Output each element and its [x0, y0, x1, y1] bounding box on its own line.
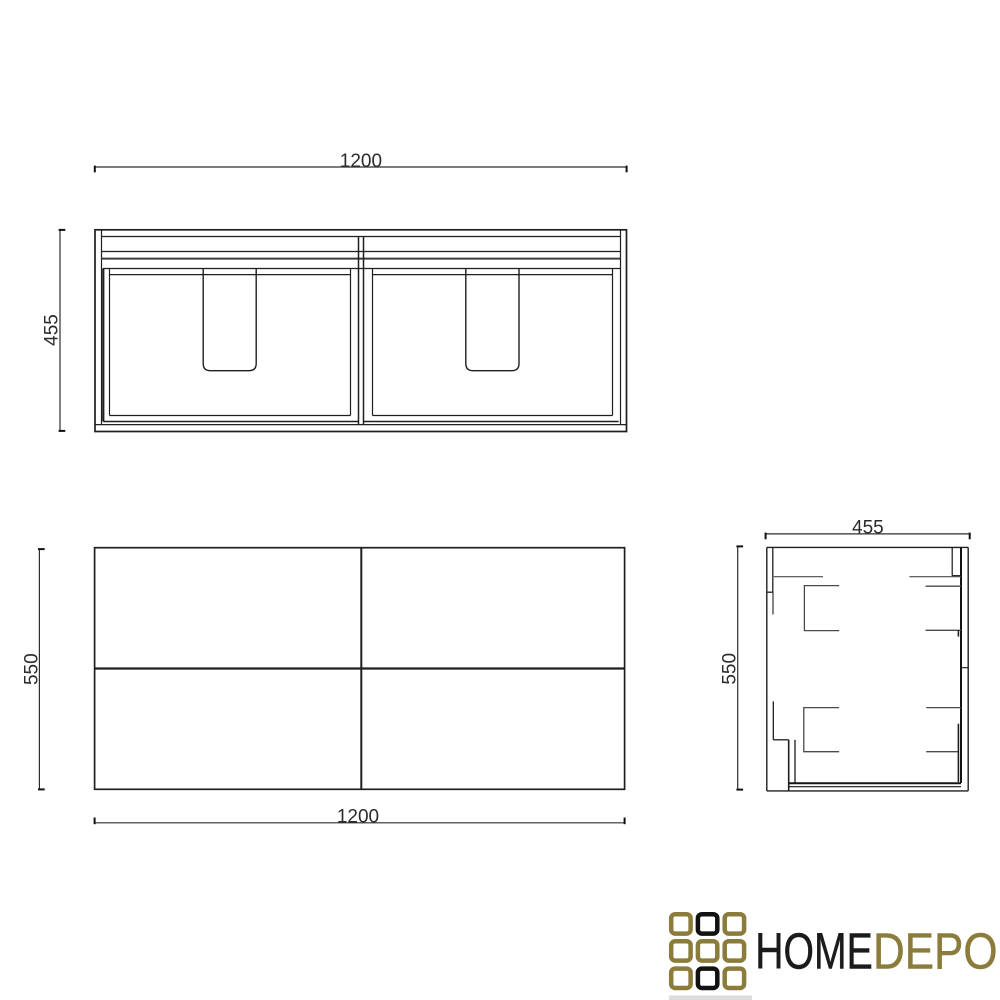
svg-text:1200: 1200 [337, 807, 379, 828]
svg-text:HOME: HOME [755, 923, 873, 980]
svg-text:DEPO: DEPO [873, 923, 998, 980]
svg-text:455: 455 [852, 518, 884, 539]
svg-text:550: 550 [720, 653, 741, 685]
svg-text:550: 550 [22, 653, 43, 685]
svg-text:1200: 1200 [340, 151, 382, 172]
svg-text:455: 455 [42, 314, 63, 346]
